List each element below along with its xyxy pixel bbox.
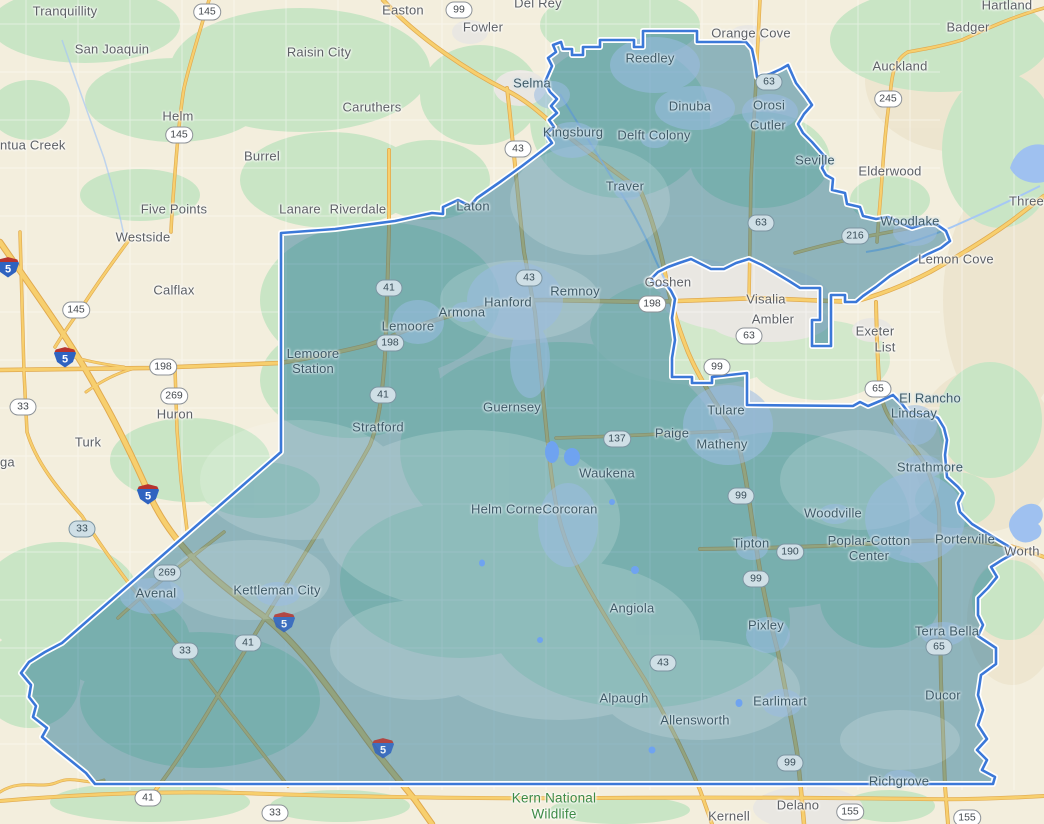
route-198-shield: 198 [149, 359, 177, 376]
route-41-shield: 41 [135, 790, 162, 807]
map-label-delft-colony: Delft Colony [617, 129, 690, 144]
map-label-hartland: Hartland [982, 0, 1033, 13]
route-145-shield: 145 [165, 127, 193, 144]
map-label-dinuba: Dinuba [669, 100, 711, 115]
route-43-shield: 43 [650, 655, 677, 672]
interstate-5-shield: 5 [372, 738, 394, 759]
map-label-lemoore: Lemoore [382, 320, 435, 335]
map-label-traver: Traver [606, 180, 644, 195]
route-33-shield: 33 [172, 643, 199, 660]
map-label-three: Three [1009, 195, 1044, 210]
route-137-shield: 137 [603, 431, 631, 448]
map-label-selma: Selma [513, 77, 551, 92]
map-label-corcoran: Corcoran [542, 503, 597, 518]
route-41-shield: 41 [370, 387, 397, 404]
map-label-ambler: Ambler [752, 313, 794, 328]
map-label-ducor: Ducor [925, 689, 961, 704]
route-198-shield: 198 [638, 296, 666, 313]
interstate-5-shield: 5 [273, 612, 295, 633]
map-label-reedley: Reedley [625, 52, 674, 67]
map-label-tulare: Tulare [707, 404, 745, 419]
map-label-kettleman-city: Kettleman City [233, 584, 320, 599]
map-label-remnoy: Remnoy [550, 285, 600, 300]
route-99-shield: 99 [704, 359, 731, 376]
map-label-woodville: Woodville [804, 507, 862, 522]
route-63-shield: 63 [736, 328, 763, 345]
map-label-paige: Paige [655, 427, 689, 442]
route-216-shield: 216 [841, 228, 869, 245]
map-label-san-joaquin: San Joaquin [75, 43, 149, 58]
map-label-orosi: Orosi [753, 99, 785, 114]
map-label-riverdale: Riverdale [330, 203, 387, 218]
map-label-porterville: Porterville [935, 533, 995, 548]
map-label-matheny: Matheny [696, 438, 747, 453]
map-label-goshen: Goshen [645, 276, 692, 291]
map-annotations: TranquillitySan JoaquinRaisin CityEaston… [0, 0, 1044, 824]
map-label-tipton: Tipton [733, 537, 770, 552]
map-canvas[interactable]: TranquillitySan JoaquinRaisin CityEaston… [0, 0, 1044, 824]
map-label-seville: Seville [795, 154, 835, 169]
interstate-5-shield: 5 [54, 347, 76, 368]
map-label-lindsay: Lindsay [891, 407, 937, 422]
interstate-5-shield: 5 [137, 484, 159, 505]
map-label-auckland: Auckland [872, 60, 927, 75]
route-198-shield: 198 [376, 335, 404, 352]
route-269-shield: 269 [153, 565, 181, 582]
route-63-shield: 63 [748, 215, 775, 232]
map-label-fowler: Fowler [463, 21, 503, 36]
map-label-five-points: Five Points [141, 203, 208, 218]
map-label-kingsburg: Kingsburg [543, 126, 603, 141]
map-label-del-rey: Del Rey [514, 0, 562, 11]
map-label-kernell: Kernell [708, 810, 750, 824]
map-label-burrel: Burrel [244, 150, 280, 165]
map-label-ntua-creek: ntua Creek [0, 139, 66, 154]
map-label-turk: Turk [75, 436, 101, 451]
map-label-elderwood: Elderwood [858, 165, 921, 180]
route-65-shield: 65 [926, 639, 953, 656]
map-label-earlimart: Earlimart [753, 695, 807, 710]
route-33-shield: 33 [262, 805, 289, 822]
map-label-armona: Armona [439, 306, 486, 321]
map-label-strathmore: Strathmore [897, 461, 963, 476]
map-label-richgrove: Richgrove [869, 775, 929, 790]
route-190-shield: 190 [776, 544, 804, 561]
map-label-delano: Delano [777, 799, 819, 814]
route-99-shield: 99 [446, 2, 473, 19]
map-label-angiola: Angiola [610, 602, 655, 617]
map-label-terra-bella: Terra Bella [915, 625, 979, 640]
interstate-5-shield: 5 [0, 257, 19, 278]
map-label-caruthers: Caruthers [343, 101, 402, 116]
map-label-helm: Helm [162, 110, 193, 125]
map-label-el-rancho: El Rancho [899, 392, 961, 407]
map-label-allensworth: Allensworth [660, 714, 729, 729]
route-145-shield: 145 [62, 302, 90, 319]
map-label-pixley: Pixley [748, 619, 784, 634]
map-label-lemoore-station: LemooreStation [287, 347, 340, 377]
route-63-shield: 63 [756, 74, 783, 91]
map-label-woodlake: Woodlake [880, 215, 939, 230]
map-label-badger: Badger [946, 21, 989, 36]
map-label-lemon-cove: Lemon Cove [918, 253, 994, 268]
map-label-ga: ga [0, 456, 15, 471]
route-269-shield: 269 [160, 388, 188, 405]
map-label-stratford: Stratford [352, 421, 404, 436]
route-65-shield: 65 [865, 381, 892, 398]
route-99-shield: 99 [728, 488, 755, 505]
route-155-shield: 155 [953, 810, 981, 824]
map-label-laton: Laton [456, 200, 490, 215]
route-33-shield: 33 [10, 399, 37, 416]
route-245-shield: 245 [874, 91, 902, 108]
map-label-westside: Westside [116, 231, 171, 246]
map-label-guernsey: Guernsey [483, 401, 541, 416]
map-label-tranquillity: Tranquillity [33, 5, 98, 20]
map-label-kern-national-wildlife: Kern NationalWildlife [512, 790, 596, 821]
map-label-calflax: Calflax [153, 284, 194, 299]
map-label-orange-cove: Orange Cove [711, 27, 791, 42]
map-label-lanare: Lanare [279, 203, 321, 218]
route-99-shield: 99 [743, 571, 770, 588]
route-41-shield: 41 [376, 280, 403, 297]
route-43-shield: 43 [505, 141, 532, 158]
map-label-avenal: Avenal [136, 587, 177, 602]
route-155-shield: 155 [836, 804, 864, 821]
route-99-shield: 99 [777, 755, 804, 772]
map-label-helm-corner: Helm Corner [471, 503, 547, 518]
route-33-shield: 33 [69, 521, 96, 538]
map-label-huron: Huron [157, 408, 193, 423]
map-label-hanford: Hanford [484, 296, 532, 311]
map-label-list: List [874, 341, 895, 356]
map-label-waukena: Waukena [579, 467, 635, 482]
route-41-shield: 41 [235, 635, 262, 652]
map-label-worth: Worth [1004, 545, 1039, 560]
map-label-cutler: Cutler [750, 119, 786, 134]
map-label-easton: Easton [382, 4, 424, 19]
map-label-visalia: Visalia [746, 293, 785, 308]
route-43-shield: 43 [516, 270, 543, 287]
map-label-exeter: Exeter [856, 325, 895, 340]
map-label-alpaugh: Alpaugh [599, 692, 648, 707]
map-label-raisin-city: Raisin City [287, 46, 351, 61]
route-145-shield: 145 [193, 4, 221, 21]
map-label-poplar-cotton-center: Poplar-CottonCenter [828, 534, 911, 564]
